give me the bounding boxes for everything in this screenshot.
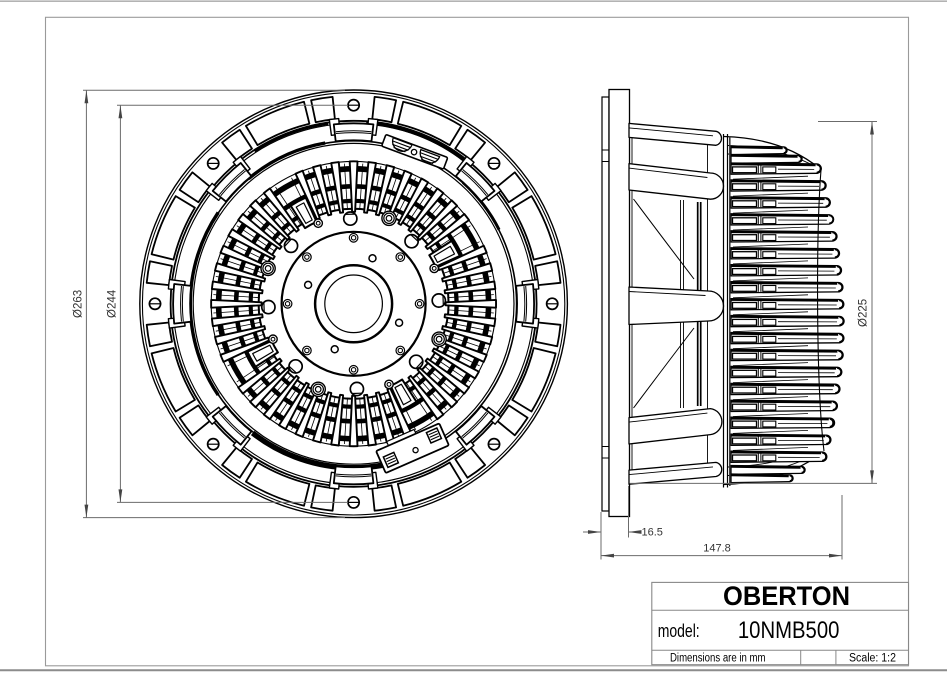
svg-text:model:: model: (658, 621, 700, 641)
svg-text:Ø225: Ø225 (858, 299, 870, 327)
svg-text:Ø263: Ø263 (73, 290, 85, 318)
svg-text:OBERTON: OBERTON (723, 581, 850, 611)
svg-text:147.8: 147.8 (703, 543, 731, 555)
svg-text:Dimensions are in mm: Dimensions are in mm (670, 653, 766, 665)
svg-text:10NMB500: 10NMB500 (738, 617, 840, 644)
svg-text:Ø244: Ø244 (107, 289, 119, 318)
svg-text:Scale: 1:2: Scale: 1:2 (849, 653, 896, 665)
svg-text:16.5: 16.5 (642, 527, 663, 539)
